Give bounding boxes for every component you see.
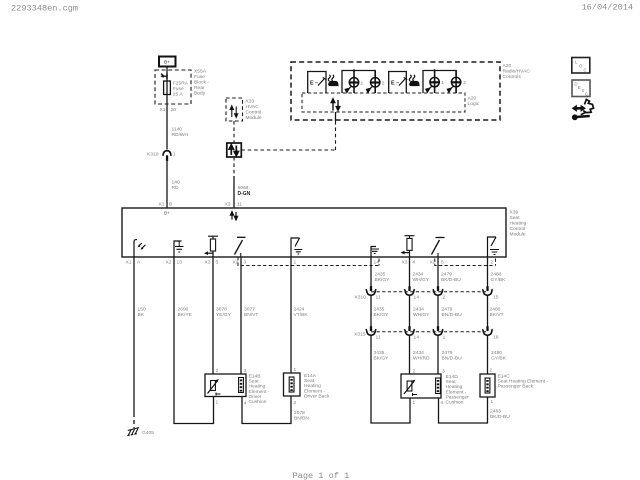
svg-text:X3: X3: [402, 260, 408, 266]
svg-text:5: 5: [441, 260, 444, 266]
svg-text:2480: 2480: [490, 307, 501, 313]
svg-text:1: 1: [443, 335, 446, 341]
svg-text:1: 1: [294, 367, 297, 373]
svg-text:3: 3: [244, 260, 247, 266]
svg-text:2480: 2480: [491, 272, 502, 278]
svg-text:2479: 2479: [442, 307, 453, 313]
svg-text:2: 2: [294, 400, 297, 406]
svg-text:BN/BN: BN/BN: [294, 416, 309, 422]
svg-text:2434: 2434: [413, 307, 424, 313]
svg-text:BK/GY: BK/GY: [374, 312, 390, 318]
svg-text:Rear: Rear: [194, 85, 205, 91]
svg-text:3078: 3078: [216, 307, 227, 313]
svg-text:BN/D-BU: BN/D-BU: [442, 312, 463, 318]
svg-text:Seat Heating Element -: Seat Heating Element -: [498, 379, 549, 385]
svg-text:Fuse: Fuse: [194, 74, 205, 80]
svg-text:WH/GY: WH/GY: [413, 277, 430, 283]
svg-text:X3: X3: [225, 202, 231, 208]
svg-text:WH/GY: WH/GY: [413, 312, 430, 318]
svg-text:C: C: [584, 68, 587, 73]
svg-text:Seat: Seat: [304, 378, 315, 384]
svg-text:3077: 3077: [244, 307, 255, 313]
svg-text:4: 4: [440, 400, 443, 406]
svg-text:2690: 2690: [178, 307, 189, 313]
svg-text:2: 2: [382, 80, 385, 86]
svg-text:1: 1: [413, 400, 416, 406]
svg-text:BK/GY: BK/GY: [374, 356, 390, 362]
svg-text:BK/VT: BK/VT: [490, 312, 504, 318]
svg-text:X55A: X55A: [194, 69, 207, 75]
svg-text:2435: 2435: [374, 307, 385, 313]
svg-text:X2: X2: [166, 260, 172, 266]
svg-text:1: 1: [216, 400, 219, 406]
svg-text:BK/GY: BK/GY: [375, 277, 391, 283]
svg-text:X1: X1: [160, 107, 166, 113]
svg-text:16/04/2014: 16/04/2014: [582, 3, 634, 13]
svg-text:4: 4: [244, 401, 247, 407]
svg-text:2434: 2434: [413, 350, 424, 356]
svg-text:Control: Control: [510, 226, 526, 232]
svg-text:Radio/HVAC: Radio/HVAC: [503, 69, 531, 75]
svg-text:K310: K310: [147, 152, 159, 158]
svg-text:G405: G405: [142, 430, 154, 436]
svg-text:2078: 2078: [294, 410, 305, 416]
svg-text:3: 3: [244, 368, 247, 374]
svg-text:Element -: Element -: [446, 389, 467, 395]
svg-text:K33: K33: [246, 99, 255, 105]
svg-text:1: 1: [361, 80, 364, 86]
svg-text:2483: 2483: [490, 409, 501, 415]
svg-text:VT/BK: VT/BK: [294, 312, 309, 318]
svg-text:2480: 2480: [491, 350, 502, 356]
svg-text:X3: X3: [205, 260, 211, 266]
svg-text:Seat: Seat: [446, 379, 457, 385]
svg-text:A20: A20: [468, 96, 477, 102]
svg-text:15: 15: [493, 295, 499, 301]
svg-text:BK/D-BU: BK/D-BU: [441, 277, 461, 283]
svg-text:Block -: Block -: [194, 80, 209, 86]
svg-text:1: 1: [173, 152, 176, 158]
svg-text:E14A: E14A: [304, 373, 317, 379]
svg-text:Driver: Driver: [249, 394, 262, 400]
svg-text:2479: 2479: [442, 350, 453, 356]
svg-text:Control: Control: [246, 110, 262, 116]
svg-text:A20: A20: [503, 63, 512, 69]
svg-text:BN/VT: BN/VT: [244, 312, 258, 318]
svg-text:B+: B+: [164, 60, 170, 65]
svg-text:BK/YE: BK/YE: [178, 312, 193, 318]
svg-text:Passenger Back: Passenger Back: [498, 384, 534, 390]
svg-text:2: 2: [443, 295, 446, 301]
svg-text:Module: Module: [246, 115, 262, 121]
svg-text:Passenger: Passenger: [446, 394, 470, 400]
svg-text:B+: B+: [164, 211, 170, 216]
svg-text:2479: 2479: [441, 272, 452, 278]
svg-text:1: 1: [441, 80, 444, 86]
svg-text:RD: RD: [172, 185, 180, 191]
svg-text:Heating: Heating: [249, 384, 266, 390]
svg-text:2: 2: [463, 80, 466, 86]
svg-text:2: 2: [491, 260, 494, 266]
svg-text:11: 11: [237, 202, 242, 208]
svg-text:13: 13: [177, 260, 183, 266]
svg-text:BK/D-BU: BK/D-BU: [490, 414, 510, 420]
svg-text:11: 11: [376, 295, 381, 301]
svg-text:Cushion: Cushion: [446, 400, 464, 406]
svg-text:11: 11: [376, 335, 381, 341]
svg-text:Cushion: Cushion: [249, 399, 267, 405]
svg-text:Controls: Controls: [503, 74, 522, 80]
svg-text:Body: Body: [194, 91, 206, 97]
svg-text:BN/D-BU: BN/D-BU: [442, 356, 463, 362]
svg-text:1: 1: [294, 260, 297, 266]
svg-text:150: 150: [138, 307, 146, 313]
svg-text:14: 14: [414, 335, 420, 341]
svg-text:E14C: E14C: [498, 374, 511, 380]
svg-text:140: 140: [172, 180, 180, 186]
svg-text:BK: BK: [138, 312, 145, 318]
svg-text:14: 14: [374, 260, 380, 266]
svg-text:GY/BK: GY/BK: [491, 277, 507, 283]
svg-text:2434: 2434: [413, 272, 424, 278]
svg-text:E –: E –: [310, 81, 318, 87]
svg-text:E14B: E14B: [249, 374, 261, 380]
svg-text:C: C: [585, 91, 588, 96]
svg-text:14: 14: [414, 295, 420, 301]
svg-text:Module: Module: [510, 232, 526, 238]
svg-text:X1: X1: [126, 260, 132, 266]
svg-text:2424: 2424: [294, 307, 305, 313]
svg-text:E14D: E14D: [446, 374, 459, 380]
svg-text:2: 2: [490, 368, 493, 374]
svg-text:20: 20: [171, 107, 177, 113]
svg-text:Driver Back: Driver Back: [304, 393, 330, 399]
svg-text:D-GN: D-GN: [238, 191, 251, 197]
svg-text:Fuse: Fuse: [173, 86, 184, 92]
svg-text:X310: X310: [355, 295, 367, 301]
svg-text:B: B: [169, 202, 172, 208]
svg-text:Seat: Seat: [510, 215, 521, 221]
svg-text:Element -: Element -: [304, 388, 325, 394]
svg-text:YE/GY: YE/GY: [216, 312, 232, 318]
svg-text:F25RA: F25RA: [173, 81, 189, 87]
svg-text:HVAC: HVAC: [246, 104, 260, 110]
svg-text:Logic: Logic: [468, 101, 480, 107]
svg-text:2: 2: [413, 369, 416, 375]
svg-text:Heating: Heating: [446, 384, 463, 390]
svg-text:1140: 1140: [172, 127, 183, 133]
svg-text:E –: E –: [391, 81, 399, 87]
svg-text:X1: X1: [159, 202, 165, 208]
svg-text:4: 4: [413, 260, 416, 266]
svg-text:Seat: Seat: [249, 379, 260, 385]
svg-text:5: 5: [216, 260, 219, 266]
svg-text:2435: 2435: [374, 350, 385, 356]
svg-text:GY/BK: GY/BK: [491, 356, 507, 362]
svg-text:25 A: 25 A: [173, 92, 184, 98]
svg-text:Heating: Heating: [304, 383, 321, 389]
svg-text:2293348en.cgm: 2293348en.cgm: [11, 4, 78, 14]
svg-text:WH/RD: WH/RD: [413, 356, 430, 362]
svg-text:Page 1 of 1: Page 1 of 1: [293, 471, 350, 480]
svg-text:Heating: Heating: [510, 221, 527, 227]
svg-text:Element -: Element -: [249, 389, 270, 395]
svg-text:1: 1: [491, 399, 494, 405]
svg-text:16: 16: [493, 335, 499, 341]
svg-text:K39: K39: [510, 210, 519, 216]
svg-text:2435: 2435: [375, 272, 386, 278]
svg-text:2: 2: [216, 368, 219, 374]
svg-text:X315: X315: [354, 332, 366, 338]
svg-text:RD/WH: RD/WH: [172, 132, 189, 138]
svg-text:3: 3: [442, 369, 445, 375]
